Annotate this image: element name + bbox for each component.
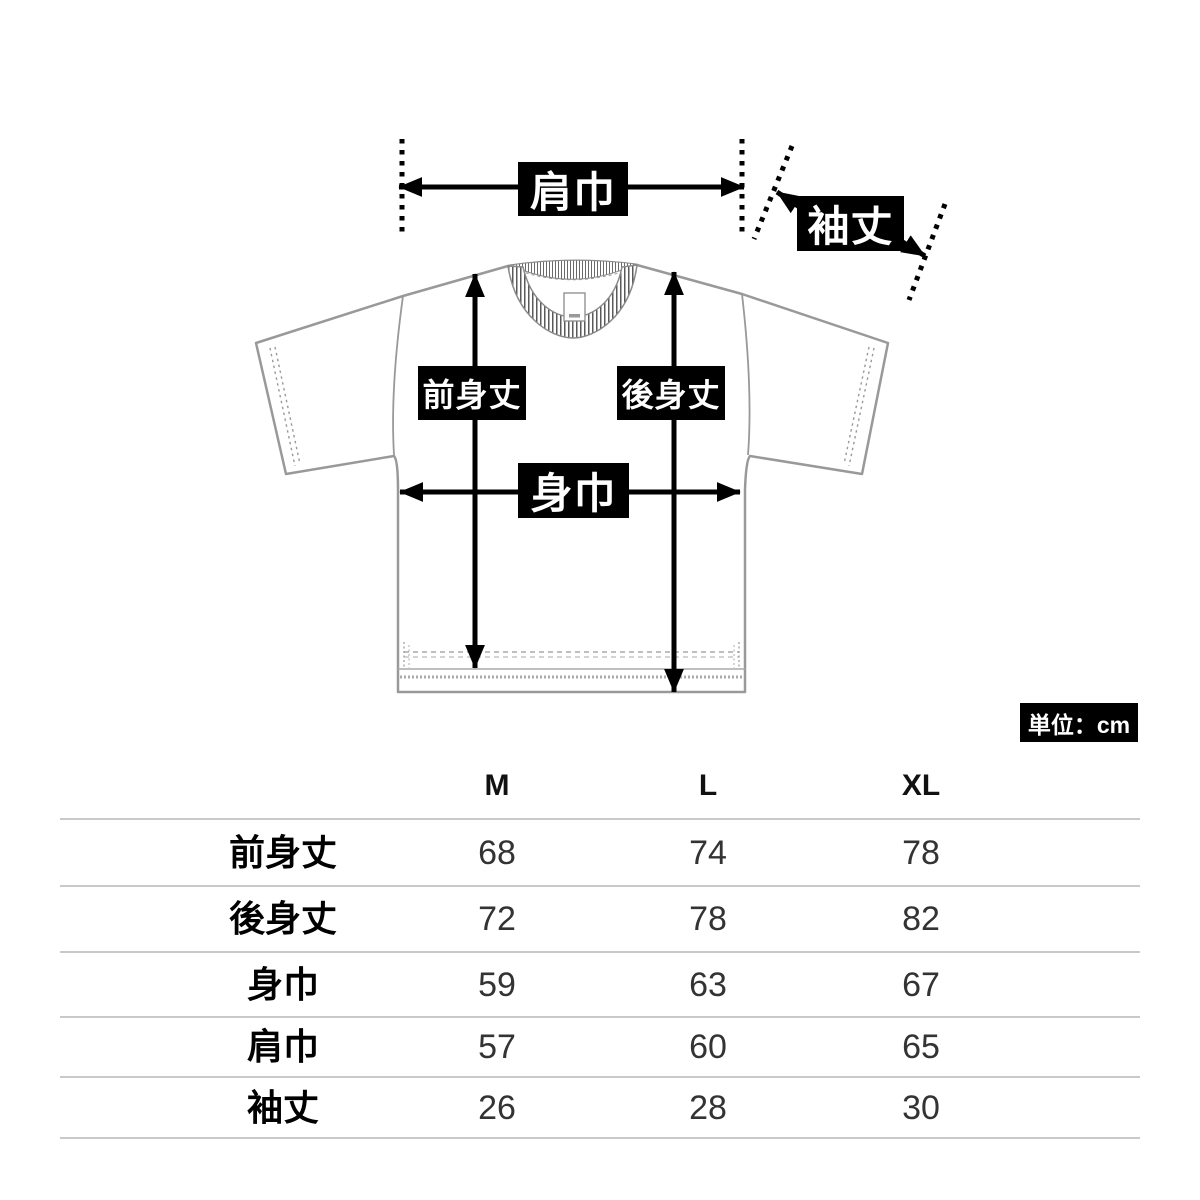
neck-tag	[564, 293, 585, 321]
cell-shoulder-width-l: 60	[689, 1025, 727, 1069]
cell-front-length-xl: 78	[902, 831, 940, 875]
sleeve-length-label: 袖丈	[797, 196, 904, 251]
column-header-xl: XL	[902, 769, 940, 803]
cell-sleeve-length-xl: 30	[902, 1086, 940, 1130]
cell-body-width-l: 63	[689, 963, 727, 1007]
row-label-shoulder-width: 肩巾	[247, 1025, 319, 1069]
cell-back-length-l: 78	[689, 897, 727, 941]
cell-sleeve-length-l: 28	[689, 1086, 727, 1130]
cell-shoulder-width-m: 57	[478, 1025, 516, 1069]
unit-badge: 単位：cm	[1020, 703, 1138, 742]
row-label-back-length: 後身丈	[229, 897, 337, 941]
tshirt-measurement-diagram	[0, 0, 1200, 760]
body-width-label: 身巾	[518, 463, 629, 518]
table-divider	[60, 818, 1140, 820]
cell-body-width-xl: 67	[902, 963, 940, 1007]
column-header-m: M	[485, 769, 510, 803]
back-length-label: 後身丈	[617, 366, 725, 420]
cell-back-length-m: 72	[478, 897, 516, 941]
table-divider	[60, 1016, 1140, 1018]
row-label-sleeve-length: 袖丈	[247, 1086, 319, 1130]
column-header-l: L	[699, 769, 717, 803]
cell-sleeve-length-m: 26	[478, 1086, 516, 1130]
size-chart-page: 肩巾 袖丈 前身丈 後身丈 身巾 単位：cm M L XL 前身丈 68 74 …	[0, 0, 1200, 1200]
cell-body-width-m: 59	[478, 963, 516, 1007]
row-label-front-length: 前身丈	[229, 831, 337, 875]
front-length-label: 前身丈	[418, 366, 526, 420]
cell-front-length-m: 68	[478, 831, 516, 875]
cell-front-length-l: 74	[689, 831, 727, 875]
cell-back-length-xl: 82	[902, 897, 940, 941]
sleeve-length-arrow-lower	[901, 241, 925, 256]
table-divider	[60, 951, 1140, 953]
cell-shoulder-width-xl: 65	[902, 1025, 940, 1069]
shoulder-width-label: 肩巾	[518, 162, 628, 216]
table-divider	[60, 1137, 1140, 1139]
row-label-body-width: 身巾	[247, 963, 319, 1007]
table-divider	[60, 885, 1140, 887]
table-divider	[60, 1076, 1140, 1078]
sleeve-guide-inner	[754, 146, 792, 239]
